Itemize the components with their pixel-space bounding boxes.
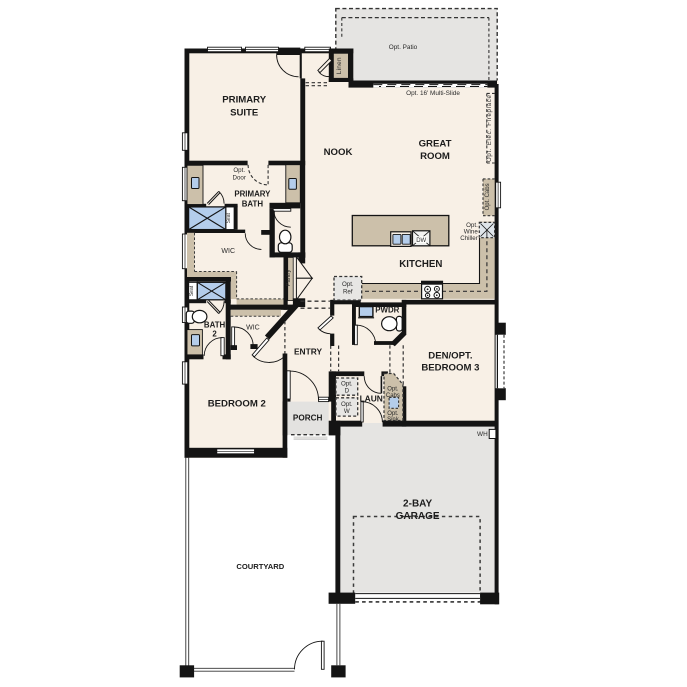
svg-text:Opt. Cabs: Opt. Cabs [485,183,491,210]
svg-text:LAUN: LAUN [360,393,383,403]
svg-text:Chiller: Chiller [460,235,478,242]
svg-text:2: 2 [212,330,217,339]
svg-text:BEDROOM 2: BEDROOM 2 [208,399,266,410]
svg-text:PORCH: PORCH [293,413,323,422]
svg-text:Door: Door [232,174,245,181]
svg-text:Opt.: Opt. [233,167,245,174]
svg-text:Sink: Sink [387,417,400,423]
svg-text:NOOK: NOOK [324,147,353,158]
svg-text:BEDROOM 3: BEDROOM 3 [421,363,479,374]
svg-text:SUITE: SUITE [230,108,259,119]
svg-text:DW: DW [416,238,426,244]
svg-text:KITCHEN: KITCHEN [399,259,442,270]
svg-text:2-BAY: 2-BAY [403,498,432,509]
svg-text:WIC: WIC [246,325,260,332]
svg-text:Ref: Ref [343,289,353,296]
svg-text:W: W [344,408,350,415]
svg-text:BATH: BATH [204,320,226,329]
svg-text:BATH: BATH [242,200,264,209]
svg-text:ROOM: ROOM [420,151,450,162]
svg-text:Pantry: Pantry [286,270,292,287]
svg-text:PWDR: PWDR [375,305,399,314]
svg-text:WIC: WIC [221,248,235,255]
svg-text:Opt. Elec. Fireplace: Opt. Elec. Fireplace [487,94,493,162]
svg-text:PRIMARY: PRIMARY [234,189,271,198]
svg-text:Opt.: Opt. [341,401,353,408]
svg-text:Opt.: Opt. [342,281,354,288]
svg-text:DEN/OPT.: DEN/OPT. [428,350,472,361]
svg-text:PRIMARY: PRIMARY [222,94,266,105]
svg-text:ENTRY: ENTRY [294,347,322,357]
svg-text:Linen: Linen [336,57,343,74]
svg-text:GARAGE: GARAGE [396,511,440,522]
svg-text:Opt. Patio: Opt. Patio [389,44,418,51]
svg-text:Seat: Seat [226,212,232,223]
svg-text:Opt.: Opt. [387,387,399,393]
svg-text:D: D [345,388,350,395]
svg-text:Opt. 16' Multi-Slide: Opt. 16' Multi-Slide [406,90,460,97]
svg-text:GREAT: GREAT [419,138,452,149]
svg-text:Opt.: Opt. [341,381,353,388]
svg-text:COURTYARD: COURTYARD [236,562,284,571]
svg-text:WH: WH [477,431,488,438]
svg-text:Opt.: Opt. [387,411,399,417]
svg-text:Seat: Seat [189,285,195,296]
